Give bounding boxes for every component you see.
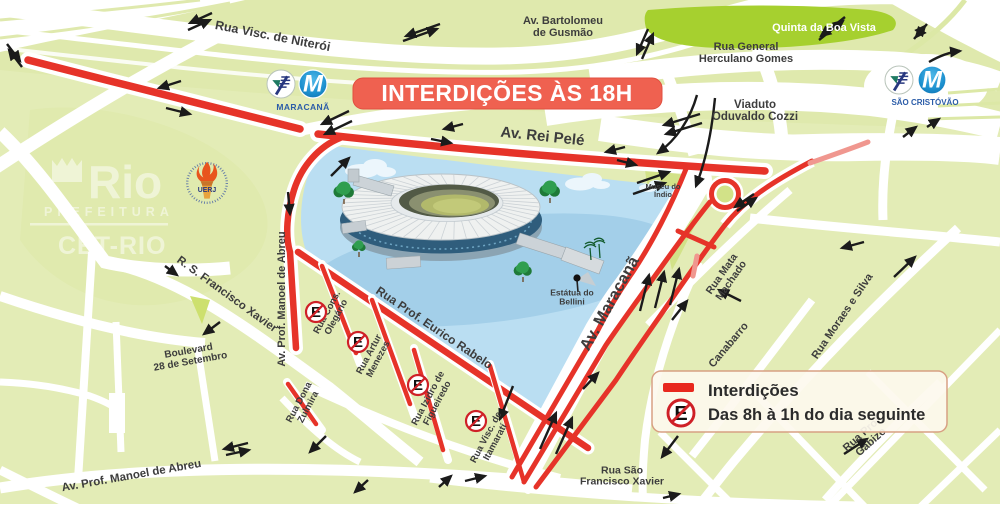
svg-text:M: M [303, 71, 324, 98]
svg-text:Quinta da Boa Vista: Quinta da Boa Vista [772, 22, 877, 34]
svg-text:Av. Bartolomeude Gusmão: Av. Bartolomeude Gusmão [523, 15, 603, 39]
svg-text:Rio: Rio [88, 156, 162, 208]
svg-text:UERJ: UERJ [198, 187, 217, 194]
svg-text:M: M [922, 67, 943, 94]
svg-text:Av. Prof. Manoel de Abreu: Av. Prof. Manoel de Abreu [276, 231, 288, 366]
svg-text:PREFEITURA: PREFEITURA [44, 205, 174, 219]
svg-text:SÃO CRISTÓVÃO: SÃO CRISTÓVÃO [891, 98, 958, 107]
svg-text:INTERDIÇÕES ÀS 18H: INTERDIÇÕES ÀS 18H [381, 79, 632, 106]
svg-text:Interdições: Interdições [708, 381, 799, 400]
svg-text:MARACANÃ: MARACANÃ [276, 102, 329, 112]
svg-text:Das 8h à 1h do dia seguinte: Das 8h à 1h do dia seguinte [708, 406, 925, 424]
svg-text:CET-RIO: CET-RIO [58, 232, 166, 260]
